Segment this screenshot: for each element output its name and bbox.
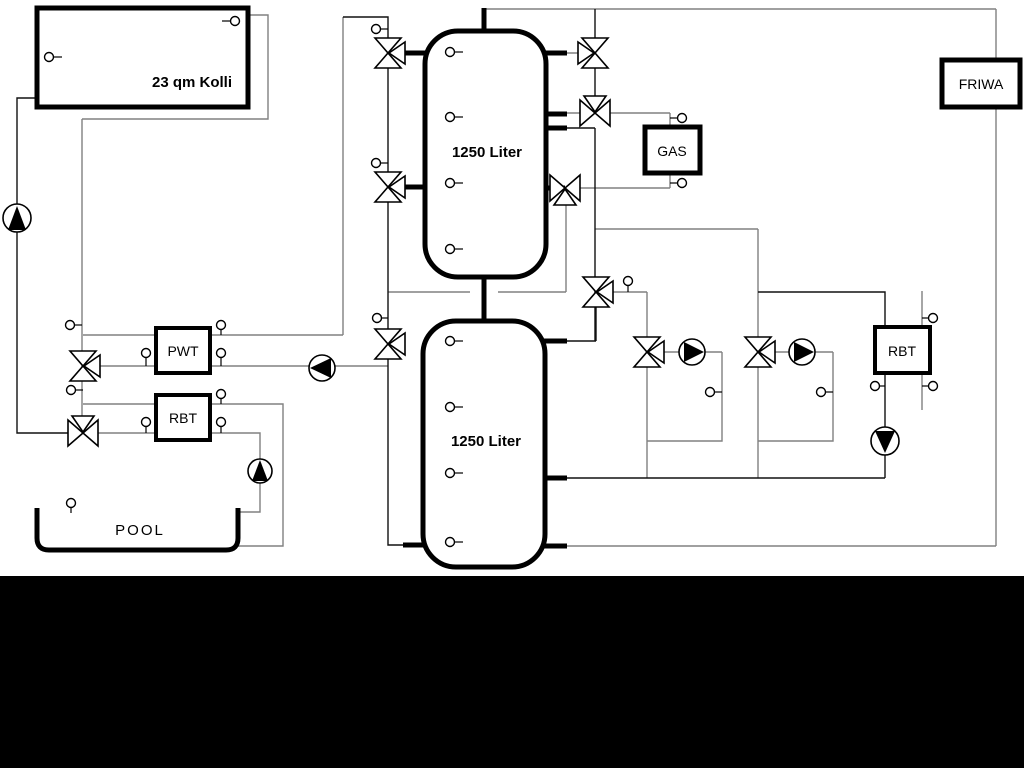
buffer-tank-2-label: 1250 Liter [451,433,521,450]
heating-schematic: 23 qm Kolli 1250 Liter 1250 Liter PWT RB… [0,0,1024,768]
gas-label: GAS [657,143,687,159]
pwt-pump-icon [309,355,335,381]
solar-pump-icon [3,204,31,232]
rbt-pump-icon [871,427,899,455]
solar-collector-box [37,8,248,107]
buffer-tank-1-label: 1250 Liter [452,144,522,161]
heating-pump-2-icon [789,339,815,365]
solar-collector-label: 23 qm Kolli [152,74,232,91]
pool-label: POOL [115,522,165,539]
rbt-right-label: RBT [888,343,916,359]
friwa-label: FRIWA [959,76,1004,92]
pwt-label: PWT [167,343,199,359]
schematic-canvas: 23 qm Kolli 1250 Liter 1250 Liter PWT RB… [0,0,1024,768]
pool-pump-icon [248,459,272,483]
heating-pump-1-icon [679,339,705,365]
bottom-black-band [0,576,1024,768]
rbt-left-label: RBT [169,410,197,426]
